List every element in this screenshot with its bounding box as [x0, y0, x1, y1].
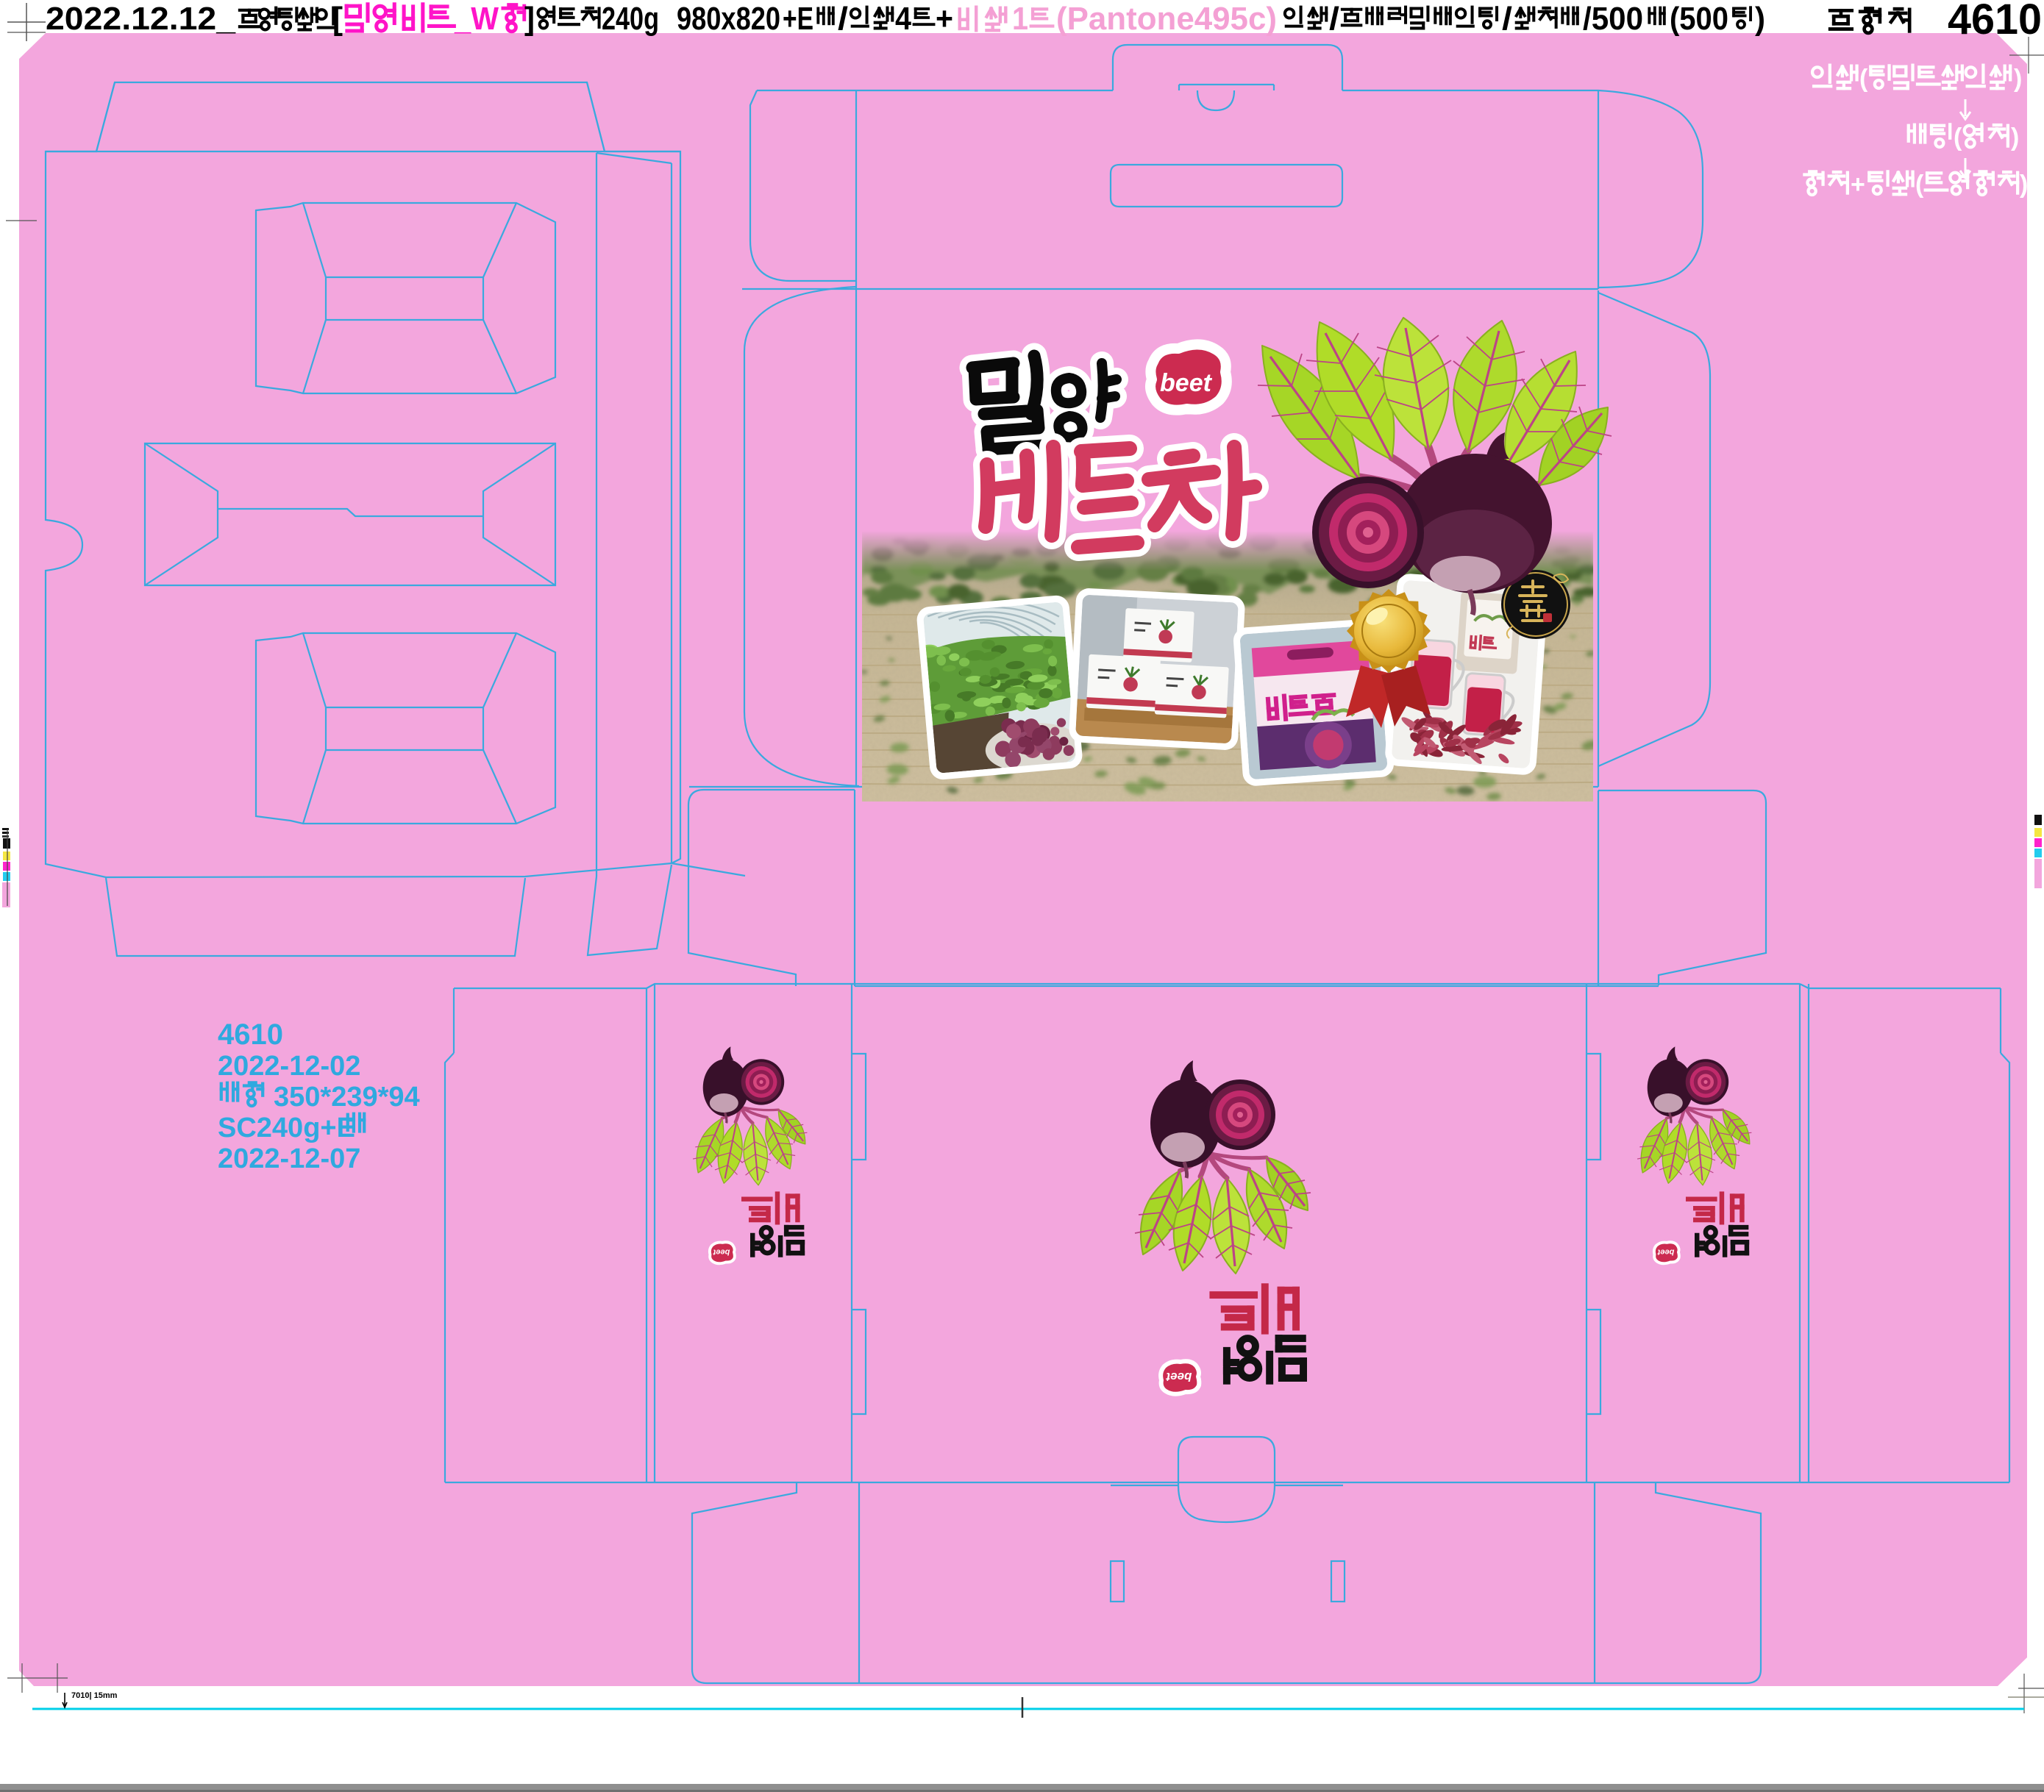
svg-text:beet: beet — [1160, 369, 1213, 397]
svg-text:): ) — [2014, 65, 2022, 93]
svg-text:7010| 15mm: 7010| 15mm — [71, 1691, 118, 1700]
svg-text:(Pantone495c): (Pantone495c) — [1056, 1, 1277, 37]
svg-text:350*239*94: 350*239*94 — [274, 1082, 420, 1113]
svg-text:+E: +E — [783, 1, 813, 37]
svg-text:1: 1 — [1012, 1, 1028, 37]
svg-text:(500: (500 — [1670, 1, 1728, 37]
svg-text:beet: beet — [1656, 1248, 1674, 1257]
svg-text:2022.12.12_: 2022.12.12_ — [46, 1, 236, 37]
svg-text:beet: beet — [1165, 1370, 1192, 1384]
svg-text:/: / — [838, 1, 848, 37]
svg-text:/: / — [1329, 1, 1339, 37]
svg-text:_W: _W — [454, 1, 499, 37]
svg-text:+: + — [1851, 171, 1865, 199]
svg-text:/500: /500 — [1583, 1, 1643, 37]
svg-text:(: ( — [1915, 171, 1924, 199]
svg-text:): ) — [2020, 171, 2028, 199]
svg-text:980x820: 980x820 — [677, 1, 780, 37]
svg-text:(: ( — [1954, 124, 1962, 151]
svg-text:(: ( — [1859, 65, 1868, 93]
svg-text:[: [ — [332, 1, 343, 37]
svg-text:beet: beet — [712, 1248, 730, 1257]
svg-text:4: 4 — [895, 1, 911, 37]
svg-text:4610: 4610 — [1948, 0, 2042, 43]
svg-text:240g: 240g — [602, 1, 659, 37]
svg-text:2022-12-07: 2022-12-07 — [218, 1143, 360, 1174]
svg-text:+: + — [936, 1, 953, 37]
svg-text:): ) — [1755, 1, 1765, 37]
svg-text:2022-12-02: 2022-12-02 — [218, 1051, 360, 1082]
svg-text:SC240g+E: SC240g+E — [218, 1113, 355, 1143]
svg-text:/: / — [1502, 1, 1512, 37]
svg-text:): ) — [2011, 124, 2019, 151]
svg-text:4610: 4610 — [218, 1018, 283, 1051]
svg-text:]: ] — [524, 1, 535, 37]
